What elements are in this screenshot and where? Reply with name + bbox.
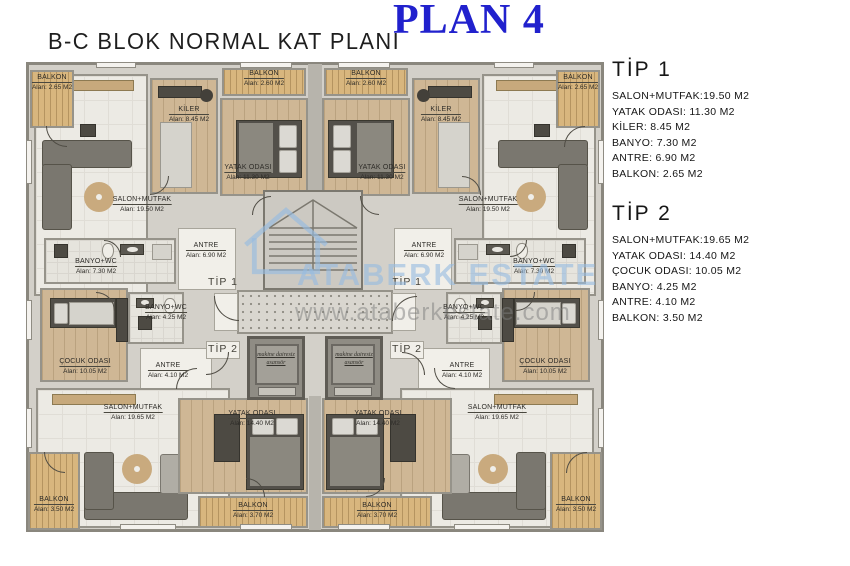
legend-tip2-heading: TİP 2 [612, 202, 848, 226]
room-name: SALON+MUTFAK [468, 404, 527, 413]
room-area: Alan: 6.90 M2 [404, 251, 444, 259]
label-cocuk: ÇOCUK ODASIAlan: 10.05 M2 [59, 358, 110, 375]
room-name: KİLER [421, 106, 461, 115]
label-salon_1965: SALON+MUTFAKAlan: 19.65 M2 [468, 404, 527, 421]
room-area: Alan: 19.65 M2 [104, 413, 163, 421]
label-antre_690: ANTREAlan: 6.90 M2 [404, 242, 444, 259]
sink-icon [120, 244, 144, 255]
label-balkon_370: BALKONAlan: 3.70 M2 [233, 502, 273, 519]
label-yatak_1440: YATAK ODASIAlan: 14.40 M2 [228, 410, 275, 427]
room-kiler-mirror [412, 78, 480, 194]
label-yatak_1440: YATAK ODASIAlan: 14.40 M2 [354, 410, 401, 427]
pillow-symbol [562, 303, 576, 324]
room-area: Alan: 19.65 M2 [468, 413, 527, 421]
room-area: Alan: 14.40 M2 [354, 419, 401, 427]
window [598, 300, 604, 340]
label-banyo_730: BANYO+WCAlan: 7.30 M2 [513, 258, 555, 275]
room-area: Alan: 19.50 M2 [459, 205, 518, 213]
legend-line: YATAK ODASI: 11.30 M2 [612, 105, 848, 121]
label-balkon_350: BALKONAlan: 3.50 M2 [556, 496, 596, 513]
window [240, 524, 292, 530]
shelf-symbol [158, 86, 202, 98]
legend-panel: TİP 1 SALON+MUTFAK:19.50 M2 YATAK ODASI:… [612, 58, 848, 326]
stool-symbol [417, 89, 430, 102]
room-area: Alan: 3.50 M2 [34, 505, 74, 513]
room-corridor [237, 290, 393, 334]
room-area: Alan: 10.05 M2 [59, 367, 110, 375]
window [26, 140, 32, 184]
room-area: Alan: 7.30 M2 [513, 267, 555, 275]
rug-symbol [516, 182, 546, 212]
room-name: ÇOCUK ODASI [59, 358, 110, 367]
rug-symbol [478, 454, 508, 484]
label-yatak_1130: YATAK ODASIAlan: 11.30 M2 [358, 164, 405, 181]
room-elevator-mirror [325, 336, 383, 400]
room-area: Alan: 4.10 M2 [442, 371, 482, 379]
shelf-symbol [428, 86, 472, 98]
label-banyo_425: BANYO+WCAlan: 4.25 M2 [443, 304, 485, 321]
furniture-layer [414, 80, 478, 192]
blanket-symbol [250, 437, 300, 486]
window [338, 62, 390, 68]
elevator-label-line: makine dairesiz [335, 352, 373, 360]
room-area: Alan: 19.50 M2 [113, 205, 172, 213]
room-area: Alan: 3.50 M2 [556, 505, 596, 513]
window [240, 62, 292, 68]
stool-symbol [200, 89, 213, 102]
room-name: KİLER [169, 106, 209, 115]
room-name: BALKON [244, 70, 284, 79]
stove-symbol [80, 124, 96, 137]
window [454, 524, 510, 530]
pillow-symbol [333, 125, 351, 148]
elevator-door [334, 387, 372, 396]
room-name: BANYO+WC [75, 258, 117, 267]
pillow-symbol [276, 418, 298, 435]
room-name: BALKON [346, 70, 386, 79]
pillow-symbol [279, 150, 297, 173]
shower-icon [152, 244, 172, 260]
window [26, 300, 32, 340]
legend-line: KİLER: 8.45 M2 [612, 120, 848, 136]
window [494, 62, 534, 68]
room-name: YATAK ODASI [228, 410, 275, 419]
legend-line: ANTRE: 6.90 M2 [612, 151, 848, 167]
room-area: Alan: 10.05 M2 [519, 367, 570, 375]
pillow-symbol [279, 125, 297, 148]
room-area: Alan: 2.60 M2 [244, 79, 284, 87]
unit-type-label-tip1: TİP 1 [208, 276, 238, 288]
label-antre_410: ANTREAlan: 4.10 M2 [148, 362, 188, 379]
room-area: Alan: 11.30 M2 [224, 173, 271, 181]
room-name: BALKON [34, 496, 74, 505]
unit-type-label-tip1: TİP 1 [392, 276, 422, 288]
label-balkon_260: BALKONAlan: 2.60 M2 [346, 70, 386, 87]
wardrobe-symbol [116, 298, 128, 342]
room-bedroom-top [220, 98, 308, 196]
window [96, 62, 136, 68]
room-name: BANYO+WC [513, 258, 555, 267]
legend-line: BALKON: 2.65 M2 [612, 167, 848, 183]
legend-line: ÇOCUK ODASI: 10.05 M2 [612, 264, 848, 280]
window [338, 524, 390, 530]
room-area: Alan: 2.65 M2 [558, 83, 598, 91]
label-balkon_265: BALKONAlan: 2.65 M2 [558, 74, 598, 91]
room-area: Alan: 8.45 M2 [421, 115, 461, 123]
room-name: SALON+MUTFAK [459, 196, 518, 205]
room-area: Alan: 2.60 M2 [346, 79, 386, 87]
furniture-layer [328, 339, 380, 397]
label-cocuk: ÇOCUK ODASIAlan: 10.05 M2 [519, 358, 570, 375]
plan-subtitle: B-C BLOK NORMAL KAT PLANI [48, 28, 400, 55]
window [598, 408, 604, 448]
rug-symbol [122, 454, 152, 484]
room-name: SALON+MUTFAK [113, 196, 172, 205]
room-name: YATAK ODASI [354, 410, 401, 419]
room-name: ANTRE [442, 362, 482, 371]
room-name: ANTRE [186, 242, 226, 251]
room-area: Alan: 7.30 M2 [75, 267, 117, 275]
room-name: YATAK ODASI [224, 164, 271, 173]
sofa-symbol [84, 452, 114, 510]
label-balkon_265: BALKONAlan: 2.65 M2 [32, 74, 72, 91]
room-area: Alan: 2.65 M2 [32, 83, 72, 91]
window [26, 408, 32, 448]
elevator-label: makine dairesizasansör [257, 352, 295, 367]
label-banyo_425: BANYO+WCAlan: 4.25 M2 [145, 304, 187, 321]
legend-line: ANTRE: 4.10 M2 [612, 295, 848, 311]
room-name: BALKON [556, 496, 596, 505]
legend-line: BANYO: 7.30 M2 [612, 136, 848, 152]
room-name: ÇOCUK ODASI [519, 358, 570, 367]
room-name: BALKON [357, 502, 397, 511]
wardrobe-symbol [502, 298, 514, 342]
kitchen-counter-symbol [66, 80, 134, 91]
stairs-symbol [265, 192, 361, 288]
room-area: Alan: 4.10 M2 [148, 371, 188, 379]
sink-icon [486, 244, 510, 255]
room-area: Alan: 3.70 M2 [233, 511, 273, 519]
room-wall-bottom-center [309, 396, 321, 530]
label-banyo_730: BANYO+WCAlan: 7.30 M2 [75, 258, 117, 275]
stove-symbol [534, 124, 550, 137]
shower-icon [458, 244, 478, 260]
sofa-symbol [516, 452, 546, 510]
room-name: BANYO+WC [443, 304, 485, 313]
label-salon_1950: SALON+MUTFAKAlan: 19.50 M2 [459, 196, 518, 213]
label-antre_690: ANTREAlan: 6.90 M2 [186, 242, 226, 259]
room-bedroom-top-mirror [322, 98, 410, 196]
window [598, 140, 604, 184]
room-area: Alan: 8.45 M2 [169, 115, 209, 123]
label-kiler: KİLERAlan: 8.45 M2 [421, 106, 461, 123]
unit-type-label-tip2: TİP 2 [208, 343, 238, 355]
elevator-label: makine dairesizasansör [335, 352, 373, 367]
window [120, 524, 176, 530]
pillow-symbol [54, 303, 68, 324]
room-wall-top-center [308, 64, 322, 190]
room-area: Alan: 3.70 M2 [357, 511, 397, 519]
rug-symbol [84, 182, 114, 212]
label-balkon_260: BALKONAlan: 2.60 M2 [244, 70, 284, 87]
room-name: BALKON [233, 502, 273, 511]
label-salon_1950: SALON+MUTFAKAlan: 19.50 M2 [113, 196, 172, 213]
sofa-symbol [42, 164, 72, 230]
room-elevator [247, 336, 305, 400]
legend-line: BALKON: 3.50 M2 [612, 311, 848, 327]
legend-tip1-heading: TİP 1 [612, 58, 848, 82]
unit-type-label-tip2: TİP 2 [392, 343, 422, 355]
pillow-symbol [333, 150, 351, 173]
elevator-label-line: asansör [257, 360, 295, 368]
furniture-layer [250, 339, 302, 397]
room-area: Alan: 4.25 M2 [145, 313, 187, 321]
room-name: BANYO+WC [145, 304, 187, 313]
legend-line: SALON+MUTFAK:19.65 M2 [612, 233, 848, 249]
pillow-symbol [332, 418, 354, 435]
label-antre_410: ANTREAlan: 4.10 M2 [442, 362, 482, 379]
room-name: BALKON [32, 74, 72, 83]
plan-title: PLAN 4 [393, 0, 545, 44]
label-balkon_370: BALKONAlan: 3.70 M2 [357, 502, 397, 519]
room-name: BALKON [558, 74, 598, 83]
sofa-symbol [558, 164, 588, 230]
room-stairs [263, 190, 363, 290]
room-name: ANTRE [404, 242, 444, 251]
kitchen-counter-symbol [496, 80, 564, 91]
label-yatak_1130: YATAK ODASIAlan: 11.30 M2 [224, 164, 271, 181]
room-name: YATAK ODASI [358, 164, 405, 173]
label-balkon_350: BALKONAlan: 3.50 M2 [34, 496, 74, 513]
floor-plan-page: B-C BLOK NORMAL KAT PLANI PLAN 4 TİP 1 S… [0, 0, 850, 566]
elevator-label-line: makine dairesiz [257, 352, 295, 360]
room-area: Alan: 6.90 M2 [186, 251, 226, 259]
room-area: Alan: 4.25 M2 [443, 313, 485, 321]
label-kiler: KİLERAlan: 8.45 M2 [169, 106, 209, 123]
room-name: SALON+MUTFAK [104, 404, 163, 413]
label-salon_1965: SALON+MUTFAKAlan: 19.65 M2 [104, 404, 163, 421]
room-name: ANTRE [148, 362, 188, 371]
legend-line: YATAK ODASI: 14.40 M2 [612, 249, 848, 265]
room-area: Alan: 11.30 M2 [358, 173, 405, 181]
washer-icon [562, 244, 576, 258]
elevator-door [258, 387, 296, 396]
furniture-layer [265, 192, 361, 288]
room-area: Alan: 14.40 M2 [228, 419, 275, 427]
legend-line: BANYO: 4.25 M2 [612, 280, 848, 296]
elevator-label-line: asansör [335, 360, 373, 368]
legend-line: SALON+MUTFAK:19.50 M2 [612, 89, 848, 105]
washer-icon [54, 244, 68, 258]
